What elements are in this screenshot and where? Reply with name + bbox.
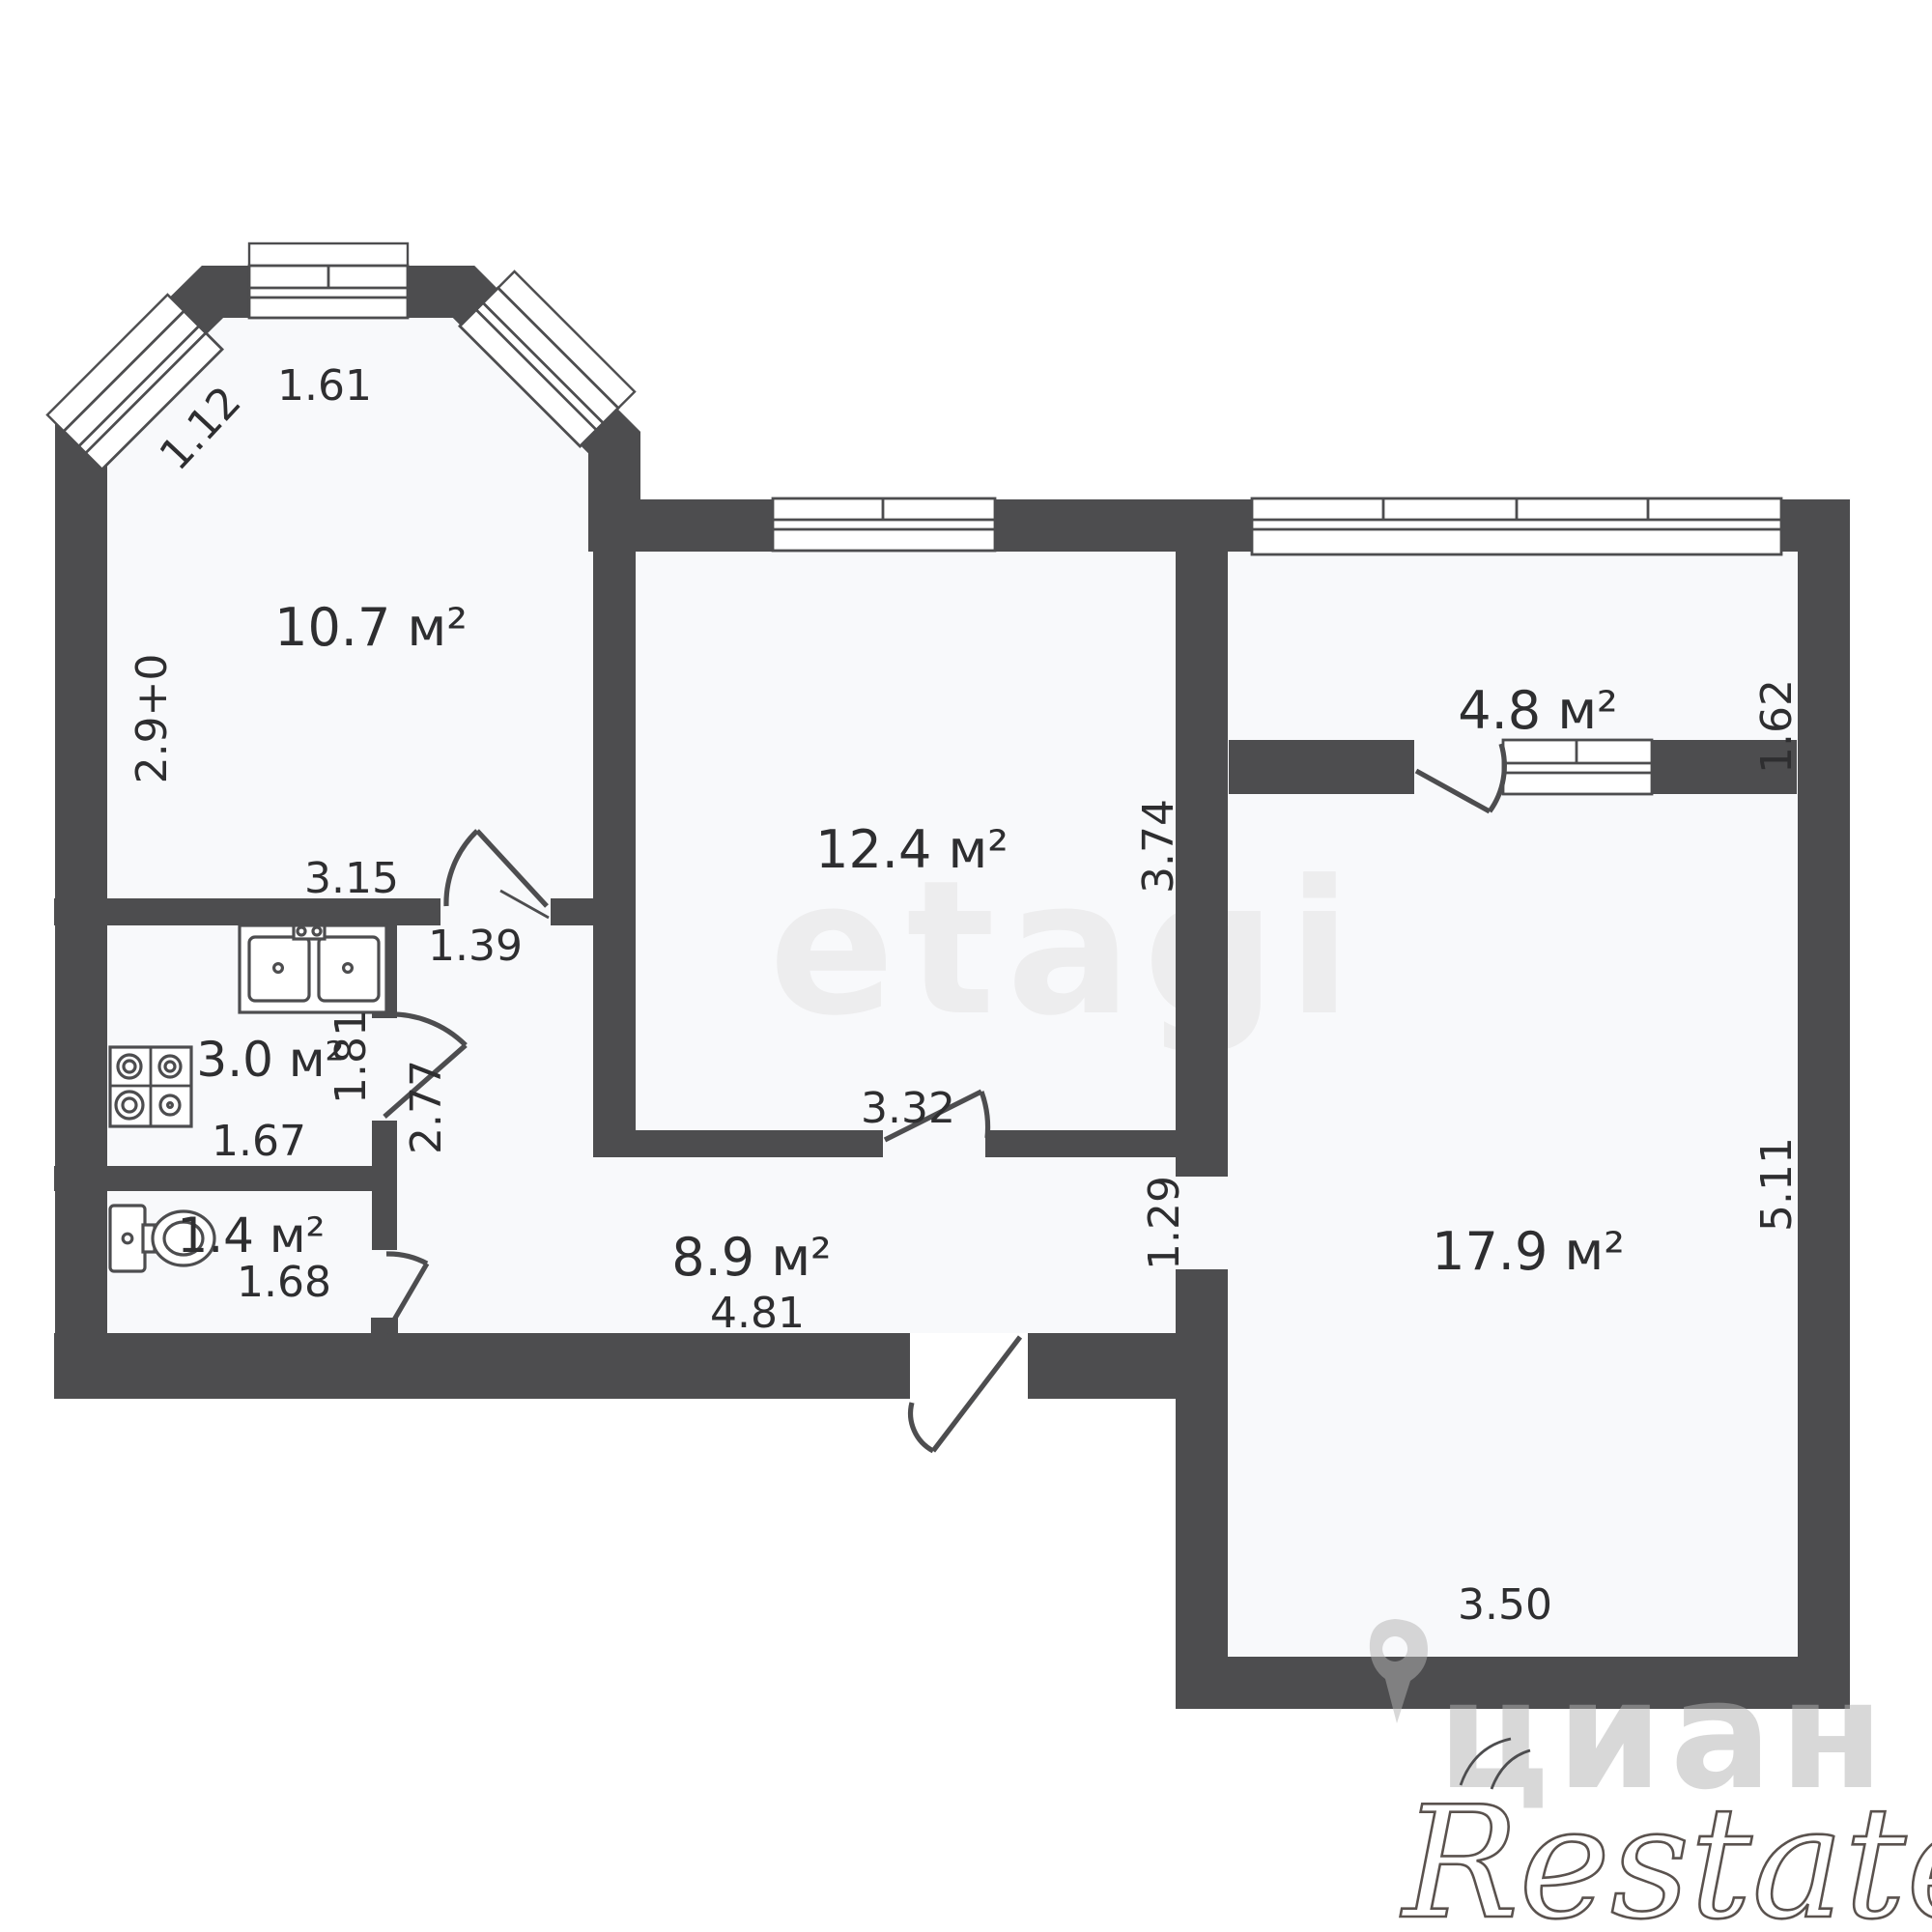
dim-bathroom-width: 1.68 xyxy=(237,1258,331,1307)
label-room-middle: 12.4 м² xyxy=(815,819,1009,880)
entrance-door xyxy=(911,1337,1020,1451)
floor-right-wing xyxy=(1184,498,1851,1683)
kitchen-stove xyxy=(110,1047,191,1126)
dim-bedroom-width: 3.15 xyxy=(304,854,399,903)
balcony-divider-window xyxy=(1503,740,1652,794)
dim-room-middle-width: 3.32 xyxy=(861,1084,955,1133)
dim-hallway-height: 2.77 xyxy=(402,1060,451,1154)
kitchen-sink xyxy=(240,925,386,1012)
watermark-restate: Restate xyxy=(1400,1773,1932,1932)
floorplan-drawing: etagi xyxy=(0,0,1932,1932)
dim-bedroom-left-height: 2.9+0 xyxy=(128,654,177,784)
label-bedroom-bay: 10.7 м² xyxy=(274,597,468,658)
dim-kitchen-width: 1.67 xyxy=(212,1117,306,1166)
dim-bay-top-window: 1.61 xyxy=(277,361,372,411)
label-living-room: 17.9 м² xyxy=(1432,1221,1625,1282)
label-kitchen: 3.0 м² xyxy=(196,1032,344,1088)
label-balcony: 4.8 м² xyxy=(1458,680,1617,741)
dim-living-width: 3.50 xyxy=(1458,1580,1552,1630)
label-hallway: 8.9 м² xyxy=(671,1227,831,1288)
middle-room-window xyxy=(773,498,995,551)
bay-top-window xyxy=(249,243,408,318)
dim-bedroom-door: 1.39 xyxy=(428,922,523,971)
dim-room-middle-height: 3.74 xyxy=(1134,799,1183,894)
dim-living-opening: 1.29 xyxy=(1140,1176,1189,1270)
label-bathroom: 1.4 м² xyxy=(177,1207,325,1264)
floorplan-page: etagi xyxy=(0,0,1932,1932)
balcony-top-window xyxy=(1252,498,1781,554)
dim-kitchen-door-height: 1.81 xyxy=(327,1009,376,1104)
dim-balcony-depth: 1.62 xyxy=(1752,679,1802,774)
dim-hallway-width: 4.81 xyxy=(710,1289,805,1338)
dim-living-height: 5.11 xyxy=(1752,1137,1802,1232)
